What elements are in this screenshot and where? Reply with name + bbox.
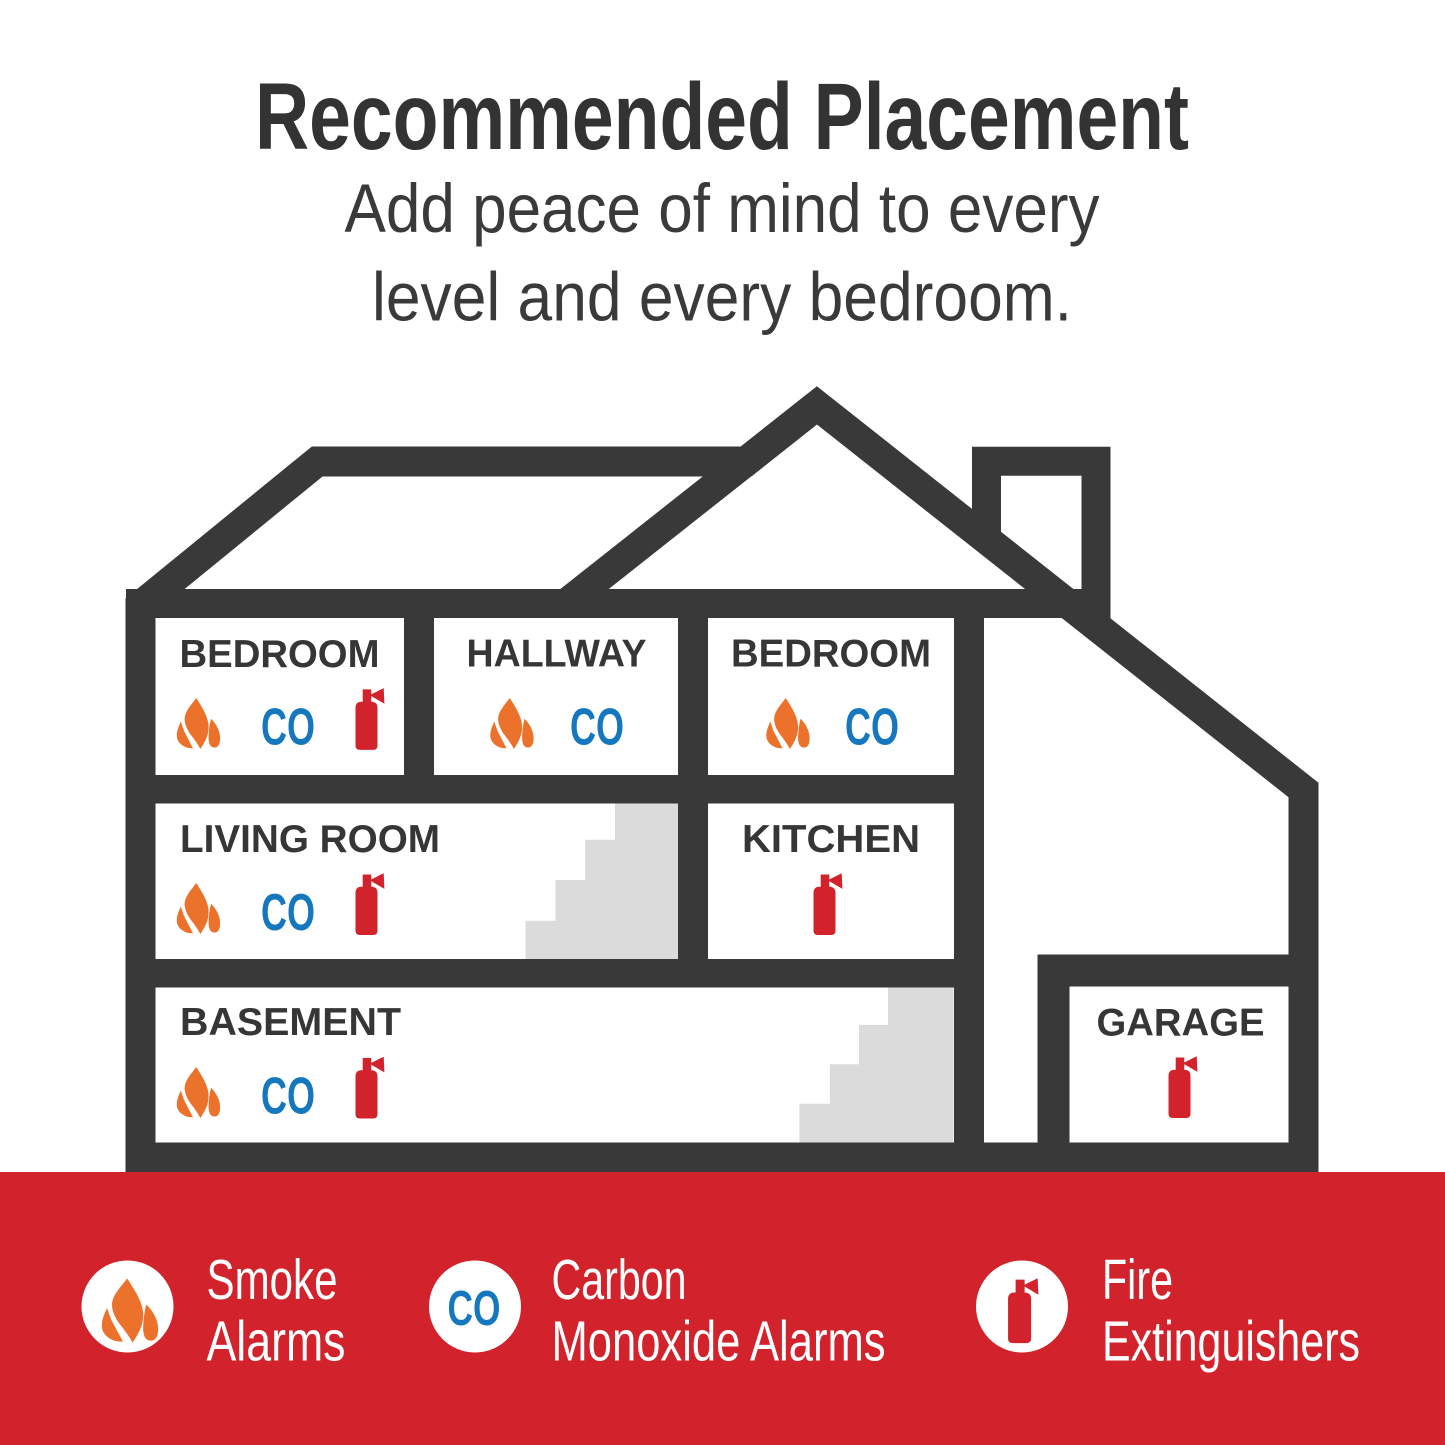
svg-text:Add peace of mind to every: Add peace of mind to every (345, 170, 1100, 247)
svg-text:Smoke: Smoke (207, 1248, 338, 1312)
svg-text:Recommended Placement: Recommended Placement (255, 64, 1189, 170)
svg-text:CO: CO (261, 1068, 315, 1126)
svg-text:Alarms: Alarms (207, 1310, 346, 1374)
svg-text:CO: CO (261, 884, 315, 942)
svg-text:LIVING ROOM: LIVING ROOM (180, 818, 440, 861)
svg-text:KITCHEN: KITCHEN (742, 818, 920, 861)
svg-text:CO: CO (570, 698, 624, 756)
svg-text:HALLWAY: HALLWAY (467, 633, 647, 676)
svg-text:CO: CO (261, 698, 315, 756)
svg-text:CO: CO (845, 698, 899, 756)
svg-text:BASEMENT: BASEMENT (180, 1001, 401, 1044)
svg-text:CO: CO (448, 1282, 501, 1336)
svg-text:level and every bedroom.: level and every bedroom. (372, 259, 1072, 336)
svg-text:BEDROOM: BEDROOM (180, 633, 380, 676)
svg-text:Extinguishers: Extinguishers (1102, 1310, 1360, 1374)
svg-text:GARAGE: GARAGE (1097, 1002, 1265, 1045)
svg-text:Monoxide Alarms: Monoxide Alarms (552, 1310, 886, 1374)
svg-text:Fire: Fire (1102, 1248, 1173, 1312)
svg-text:BEDROOM: BEDROOM (731, 633, 931, 676)
svg-text:Carbon: Carbon (552, 1248, 687, 1312)
